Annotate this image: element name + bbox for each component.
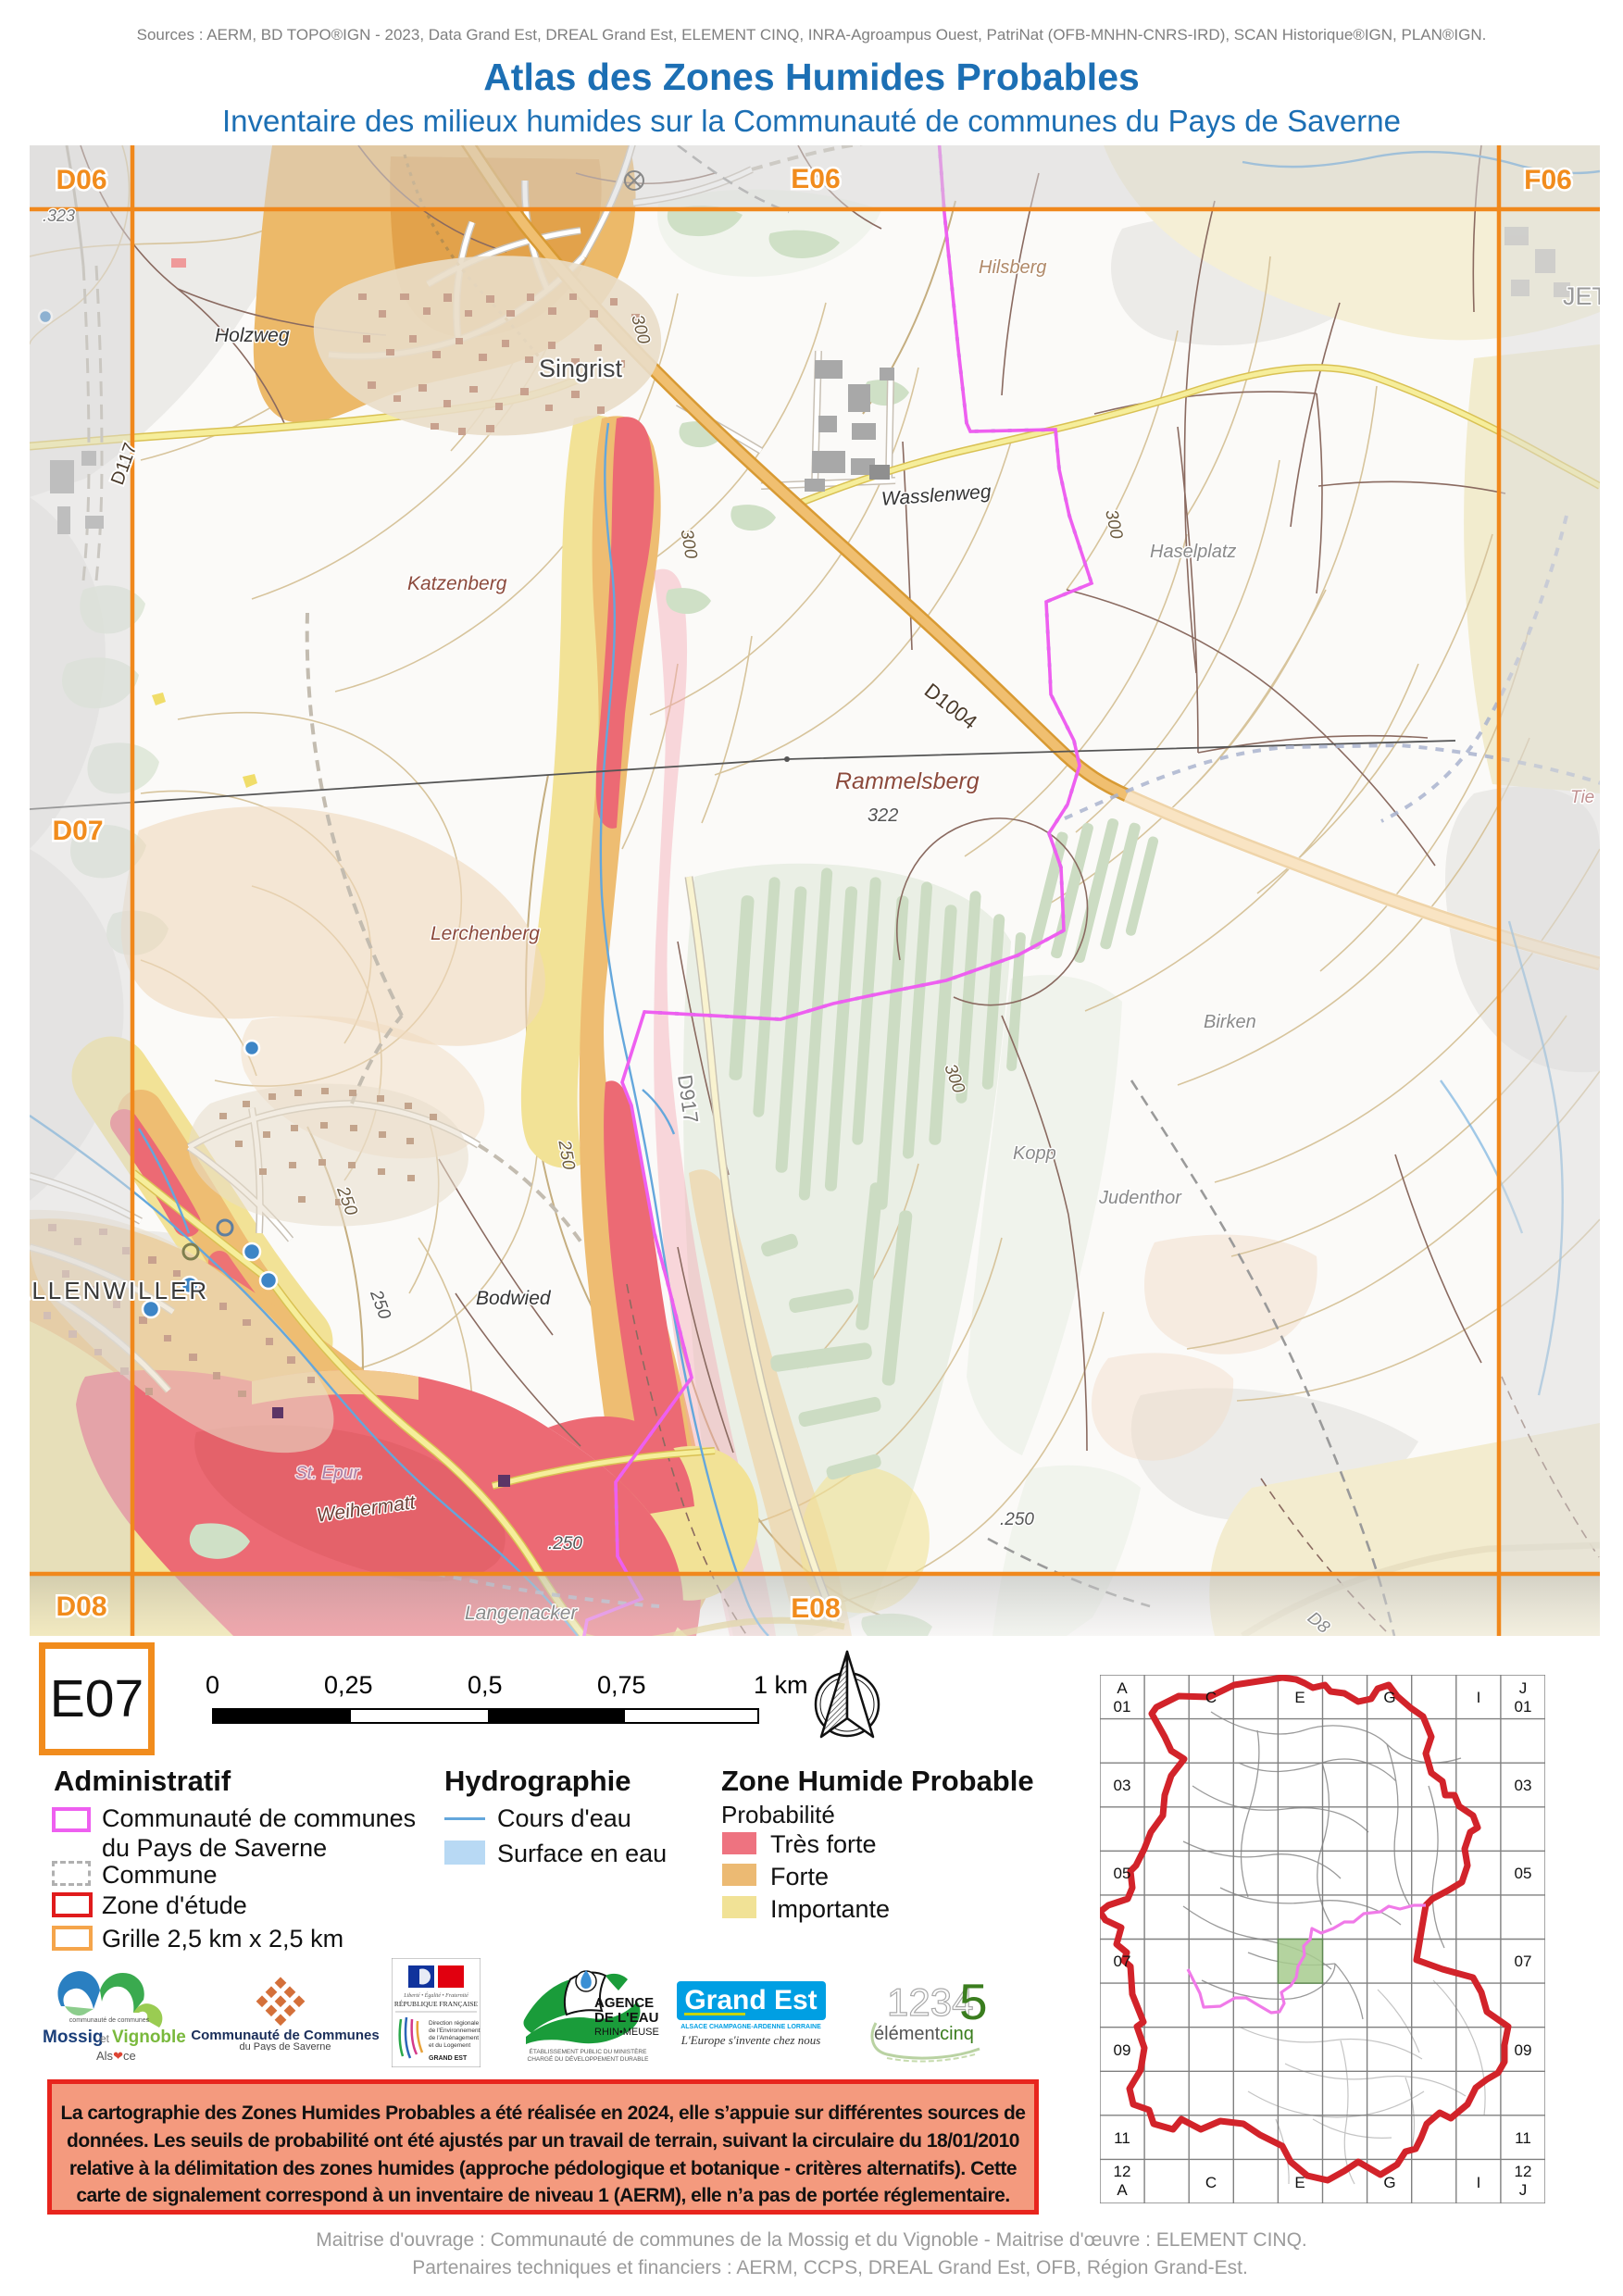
svg-text:E06: E06 xyxy=(791,164,840,194)
svg-text:D07: D07 xyxy=(52,816,103,846)
svg-text:Direction régionale: Direction régionale xyxy=(429,2020,480,2027)
svg-text:Hilsberg: Hilsberg xyxy=(979,257,1046,278)
svg-text:de l'Aménagement: de l'Aménagement xyxy=(429,2035,479,2041)
svg-text:C: C xyxy=(1205,1689,1217,1706)
svg-text:ALLENWILLER: ALLENWILLER xyxy=(30,1277,209,1304)
svg-text:Lerchenberg: Lerchenberg xyxy=(431,923,540,944)
svg-text:J: J xyxy=(1519,2181,1528,2199)
svg-text:Tie: Tie xyxy=(1570,788,1594,807)
svg-text:RHIN•MEUSE: RHIN•MEUSE xyxy=(594,2027,659,2038)
svg-text:RÉPUBLIQUE FRANÇAISE: RÉPUBLIQUE FRANÇAISE xyxy=(394,1999,479,2008)
svg-text:05: 05 xyxy=(1515,1865,1532,1882)
svg-text:E: E xyxy=(1294,2174,1305,2191)
svg-text:élémentcinq: élémentcinq xyxy=(874,2024,974,2044)
svg-text:D06: D06 xyxy=(56,165,106,195)
svg-text:Bodwied: Bodwied xyxy=(476,1288,552,1309)
svg-text:09: 09 xyxy=(1515,2041,1532,2059)
svg-text:et du Logement: et du Logement xyxy=(429,2042,470,2049)
svg-text:11: 11 xyxy=(1515,2129,1531,2147)
svg-text:AGENCE: AGENCE xyxy=(594,1995,654,2011)
svg-text:I: I xyxy=(1477,1689,1481,1706)
svg-text:5: 5 xyxy=(959,1973,988,2030)
svg-text:Vignoble: Vignoble xyxy=(112,2028,186,2047)
svg-text:St. Epur.: St. Epur. xyxy=(295,1464,363,1483)
svg-text:05: 05 xyxy=(1114,1865,1131,1882)
svg-text:du Pays de Saverne: du Pays de Saverne xyxy=(239,2041,331,2051)
svg-text:07: 07 xyxy=(1114,1953,1131,1970)
svg-text:ÉTABLISSEMENT PUBLIC DU MINIST: ÉTABLISSEMENT PUBLIC DU MINISTÈRE xyxy=(530,2047,648,2055)
svg-text:.323: .323 xyxy=(43,206,75,225)
svg-text:03: 03 xyxy=(1114,1777,1131,1794)
svg-text:.250: .250 xyxy=(1000,1510,1034,1529)
svg-text:F06: F06 xyxy=(1524,165,1572,195)
svg-text:et: et xyxy=(100,2032,110,2045)
svg-text:Katzenberg: Katzenberg xyxy=(407,573,507,594)
svg-text:communauté de communes: communauté de communes xyxy=(69,2017,150,2024)
svg-text:JET: JET xyxy=(1563,282,1600,310)
svg-text:E08: E08 xyxy=(791,1593,840,1624)
svg-text:DE L'EAU: DE L'EAU xyxy=(594,2010,658,2026)
svg-text:Holzweg: Holzweg xyxy=(215,325,290,346)
svg-text:Grand Est: Grand Est xyxy=(684,1985,817,2015)
svg-text:C: C xyxy=(1205,2174,1217,2191)
svg-text:Langenacker: Langenacker xyxy=(465,1603,578,1624)
svg-text:12: 12 xyxy=(1114,2163,1131,2180)
svg-text:Als❤ce: Als❤ce xyxy=(96,2049,136,2063)
svg-text:Liberté • Égalité • Fraternité: Liberté • Égalité • Fraternité xyxy=(403,1991,468,1999)
svg-text:I: I xyxy=(1477,2174,1481,2191)
svg-text:A: A xyxy=(1117,1679,1128,1697)
svg-text:.250: .250 xyxy=(548,1534,582,1554)
svg-text:de l'Environnement,: de l'Environnement, xyxy=(429,2028,481,2034)
svg-text:Rammelsberg: Rammelsberg xyxy=(835,768,980,794)
svg-text:Mossig: Mossig xyxy=(43,2028,103,2047)
svg-text:D08: D08 xyxy=(56,1591,106,1622)
svg-text:E: E xyxy=(1294,1689,1305,1706)
svg-text:12: 12 xyxy=(1515,2163,1532,2180)
svg-text:01: 01 xyxy=(1515,1698,1532,1716)
svg-text:G: G xyxy=(1383,1689,1395,1706)
svg-text:Birken: Birken xyxy=(1204,1012,1256,1032)
svg-text:Kopp: Kopp xyxy=(1013,1143,1056,1164)
svg-text:03: 03 xyxy=(1515,1777,1532,1794)
svg-text:L'Europe s'invente chez nous: L'Europe s'invente chez nous xyxy=(680,2033,821,2047)
svg-text:ALSACE CHAMPAGNE-ARDENNE LORRA: ALSACE CHAMPAGNE-ARDENNE LORRAINE xyxy=(680,2024,821,2030)
svg-text:07: 07 xyxy=(1515,1953,1532,1970)
svg-text:G: G xyxy=(1383,2174,1395,2191)
svg-text:11: 11 xyxy=(1114,2129,1130,2147)
svg-text:322: 322 xyxy=(868,805,898,826)
svg-text:01: 01 xyxy=(1114,1698,1131,1716)
svg-text:GRAND EST: GRAND EST xyxy=(429,2055,468,2062)
svg-text:09: 09 xyxy=(1114,2041,1131,2059)
svg-text:CHARGÉ DU DÉVELOPPEMENT DURABL: CHARGÉ DU DÉVELOPPEMENT DURABLE xyxy=(528,2054,650,2063)
svg-text:A: A xyxy=(1117,2181,1128,2199)
svg-text:Singrist: Singrist xyxy=(539,355,623,382)
svg-text:Haselplatz: Haselplatz xyxy=(1150,542,1236,562)
svg-text:J: J xyxy=(1519,1679,1528,1697)
svg-text:Judenthor: Judenthor xyxy=(1098,1188,1182,1208)
